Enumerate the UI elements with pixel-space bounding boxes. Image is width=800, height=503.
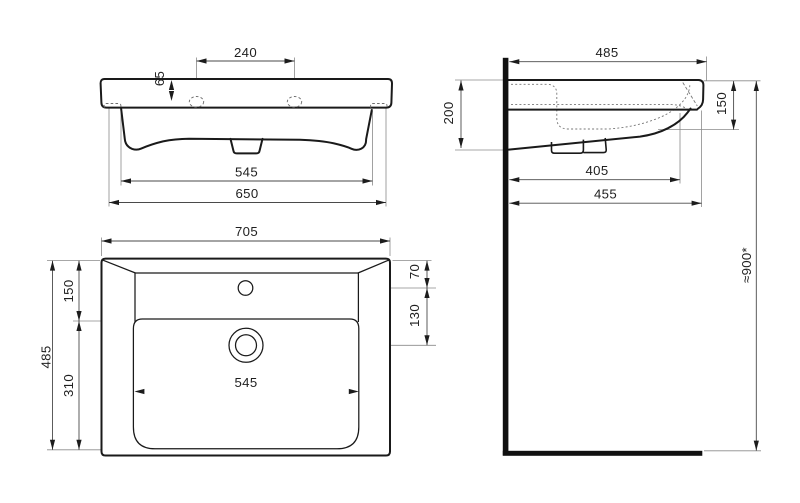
front-view: 240 65 545 650 bbox=[101, 45, 392, 207]
dim-front-body-width: 650 bbox=[236, 186, 259, 201]
arrowhead bbox=[731, 81, 736, 91]
arrowhead bbox=[509, 201, 519, 206]
dim-plan-overall-depth: 485 bbox=[39, 346, 54, 369]
arrowhead bbox=[697, 59, 707, 64]
dim-plan-bowl-depth: 310 bbox=[61, 374, 76, 397]
plan-outer-outline bbox=[102, 259, 391, 456]
arrowhead bbox=[731, 120, 736, 130]
washbasin-dimension-drawing: 240 65 545 650 bbox=[0, 0, 800, 503]
dim-front-base-width: 545 bbox=[235, 165, 258, 180]
dim-side-underside-depth: 405 bbox=[586, 163, 609, 178]
arrowhead bbox=[50, 261, 55, 271]
arrowhead bbox=[754, 441, 759, 451]
front-rim-outline bbox=[101, 79, 392, 108]
arrowhead bbox=[670, 177, 680, 182]
wall-section bbox=[503, 58, 509, 456]
arrowhead bbox=[109, 200, 119, 205]
arrowhead bbox=[76, 321, 81, 331]
dim-side-wall-height: 200 bbox=[441, 102, 456, 125]
drain-boss-front bbox=[231, 139, 263, 154]
arrowhead bbox=[121, 178, 131, 183]
side-view: 485 200 150 405 455 ≈900* bbox=[441, 45, 761, 456]
dim-side-front-edge-height: 150 bbox=[714, 92, 729, 115]
dim-plan-tap-to-drain: 130 bbox=[407, 304, 422, 327]
arrowhead bbox=[509, 59, 519, 64]
arrowhead bbox=[424, 288, 429, 298]
dim-front-hole-spacing: 240 bbox=[234, 45, 257, 60]
arrowhead bbox=[424, 335, 429, 345]
drawing-canvas: 240 65 545 650 bbox=[0, 0, 800, 503]
hidden-ledge-line bbox=[511, 105, 686, 109]
hidden-bowl-profile bbox=[511, 84, 690, 129]
dim-plan-edge-to-bowl: 150 bbox=[61, 280, 76, 303]
arrowhead bbox=[509, 177, 519, 182]
arrowhead bbox=[76, 261, 81, 271]
front-bowl-outline bbox=[121, 108, 372, 150]
dim-front-hole-offset: 65 bbox=[152, 71, 167, 86]
dim-plan-tap-offset: 70 bbox=[407, 264, 422, 279]
arrowhead bbox=[76, 440, 81, 450]
arrowhead bbox=[458, 138, 463, 148]
dim-plan-bowl-width: 545 bbox=[235, 375, 258, 390]
plan-view: 705 485 150 310 545 70 130 bbox=[39, 224, 437, 456]
drain-boss-side-left bbox=[552, 140, 584, 154]
arrowhead bbox=[50, 440, 55, 450]
floor-section bbox=[503, 451, 703, 456]
dim-side-lower-depth: 455 bbox=[594, 187, 617, 202]
arrowhead bbox=[754, 81, 759, 91]
arrowhead bbox=[424, 278, 429, 288]
dim-side-install-height: ≈900* bbox=[739, 247, 754, 283]
arrowhead bbox=[376, 200, 386, 205]
arrowhead bbox=[692, 201, 702, 206]
arrowhead bbox=[197, 58, 207, 63]
arrowhead bbox=[76, 311, 81, 321]
arrowhead bbox=[102, 238, 112, 243]
arrowhead bbox=[363, 178, 373, 183]
side-underside-outline bbox=[509, 109, 691, 150]
dim-side-overall-depth: 485 bbox=[596, 45, 619, 60]
arrowhead bbox=[285, 58, 295, 63]
arrowhead bbox=[424, 261, 429, 271]
dim-plan-overall-width: 705 bbox=[235, 224, 258, 239]
arrowhead bbox=[458, 81, 463, 91]
arrowhead bbox=[380, 238, 390, 243]
